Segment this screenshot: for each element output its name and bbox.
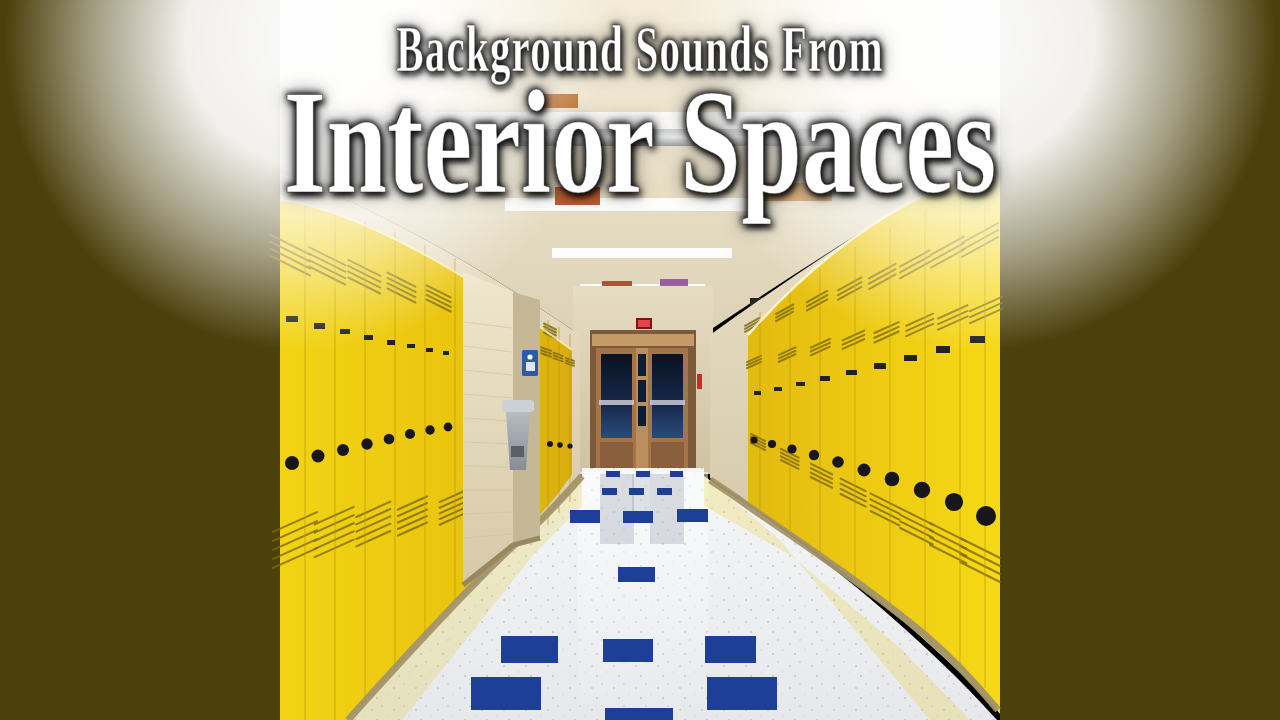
door-right-window <box>652 354 683 438</box>
restroom-sign <box>522 350 538 376</box>
push-bar-left <box>599 400 634 405</box>
door-left-window <box>601 354 632 438</box>
video-thumbnail[interactable]: Background Sounds From Interior Spaces <box>0 0 1280 720</box>
hallway-photo <box>0 0 1280 720</box>
fire-alarm <box>697 374 702 389</box>
double-doors <box>590 318 702 474</box>
push-bar-right <box>650 400 685 405</box>
